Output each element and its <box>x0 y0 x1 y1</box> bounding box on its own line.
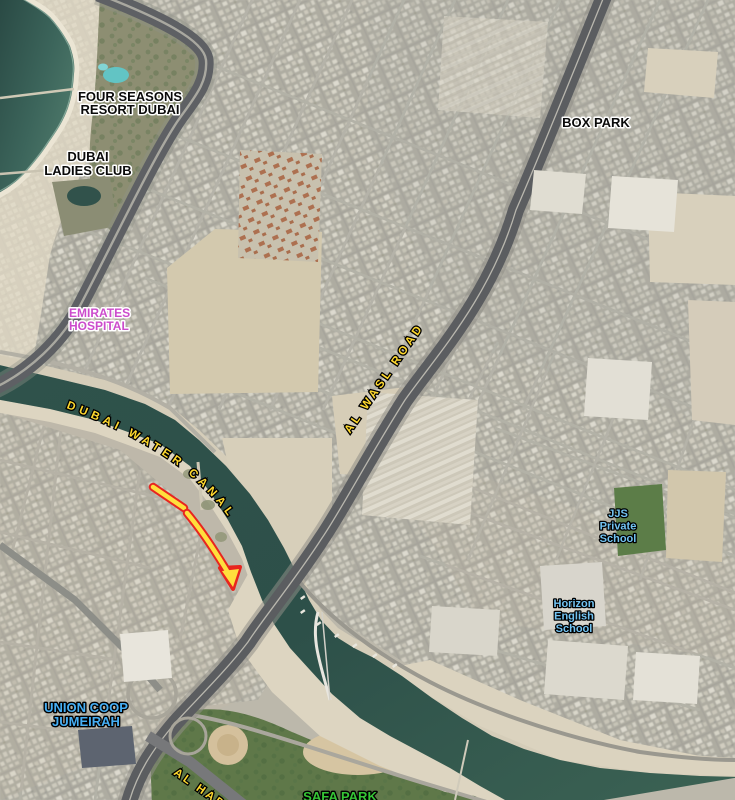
svg-text:RESORT DUBAI: RESORT DUBAI <box>81 102 180 117</box>
svg-text:UNION COOP: UNION COOP <box>44 700 128 715</box>
svg-text:SAFA PARK: SAFA PARK <box>303 789 377 800</box>
svg-text:JUMEIRAH: JUMEIRAH <box>52 714 120 729</box>
svg-text:School: School <box>600 533 637 545</box>
svg-text:BOX PARK: BOX PARK <box>562 115 630 130</box>
svg-text:EMIRATES: EMIRATES <box>69 306 130 320</box>
svg-text:Horizon: Horizon <box>554 598 595 610</box>
svg-text:English: English <box>554 611 594 623</box>
svg-text:School: School <box>556 623 593 635</box>
svg-text:JJS: JJS <box>608 508 628 520</box>
svg-text:Private: Private <box>600 521 637 533</box>
svg-text:DUBAI: DUBAI <box>67 149 108 164</box>
svg-text:HOSPITAL: HOSPITAL <box>69 319 129 333</box>
svg-text:LADIES CLUB: LADIES CLUB <box>44 163 131 178</box>
